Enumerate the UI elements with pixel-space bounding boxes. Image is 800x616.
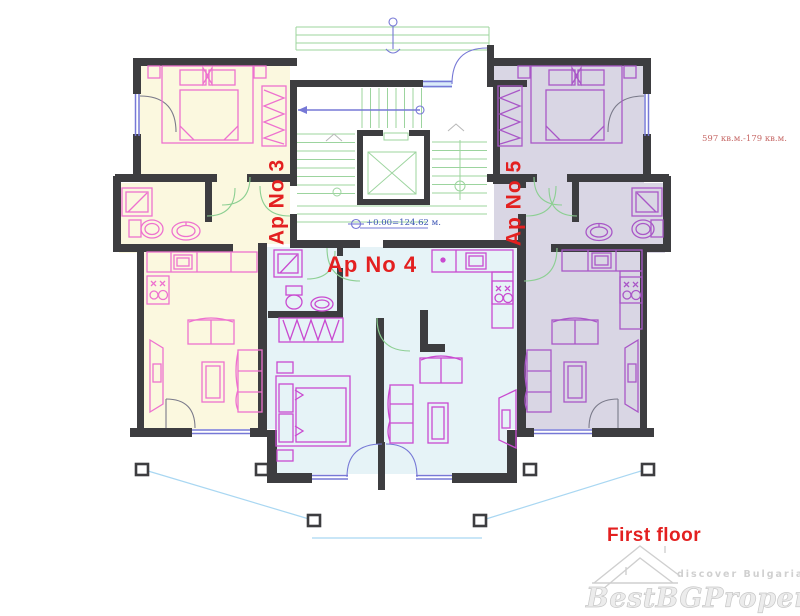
floor-plan-page: +0.00=124.62 м. 597 кв.м.-179 кв.м. Ap N… [0, 0, 800, 616]
apartment-3-label: Ap No 3 [266, 159, 289, 245]
entrance-door-arc [452, 48, 487, 84]
terrace-column [642, 464, 654, 475]
watermark-brand: BestBGProperties [585, 583, 800, 614]
terrace-column [256, 464, 268, 475]
apartment-4-label: Ap No 4 [327, 252, 417, 277]
watermark: discover Bulgaria BestBGProperties [585, 546, 800, 614]
apartment-4-area [266, 247, 517, 474]
floor-caption: First floor [607, 525, 701, 546]
level-mark-text: +0.00=124.62 м. [366, 218, 441, 228]
apartment-5-label: Ap No 5 [503, 160, 526, 246]
area-note-text: 597 кв.м.-179 кв.м. [702, 134, 787, 144]
level-marker: +0.00=124.62 м. [348, 218, 441, 229]
floor-plan-drawing: +0.00=124.62 м. 597 кв.м.-179 кв.м. Ap N… [0, 0, 800, 616]
terrace [136, 464, 654, 538]
terrace-column [136, 464, 148, 475]
terrace-column [474, 515, 486, 526]
stair-railing [298, 106, 424, 114]
terrace-column [308, 515, 320, 526]
watermark-tagline: discover Bulgaria [677, 569, 800, 580]
terrace-column [524, 464, 536, 475]
elevator [357, 130, 430, 205]
